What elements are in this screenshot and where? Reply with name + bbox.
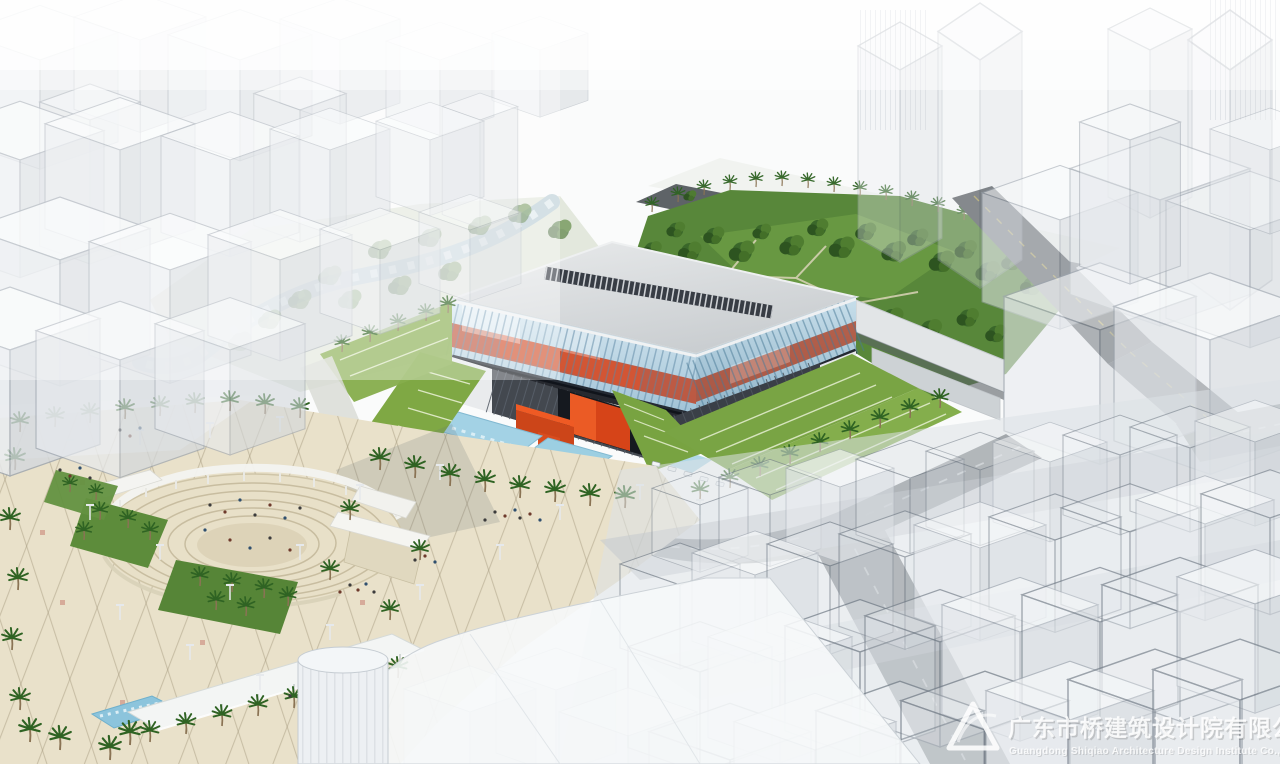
rendering-canvas: 广东市桥建筑设计院有限公司 广东市桥建筑设计院有限公司 Guangdong Sh… xyxy=(0,0,1280,764)
architectural-rendering: 广东市桥建筑设计院有限公司 广东市桥建筑设计院有限公司 Guangdong Sh… xyxy=(0,0,1280,764)
company-name-zh: 广东市桥建筑设计院有限公司 xyxy=(1008,715,1280,742)
cylinder-building xyxy=(298,647,388,764)
company-name-en: Guangdong Shiqiao Architecture Design In… xyxy=(1009,746,1280,757)
